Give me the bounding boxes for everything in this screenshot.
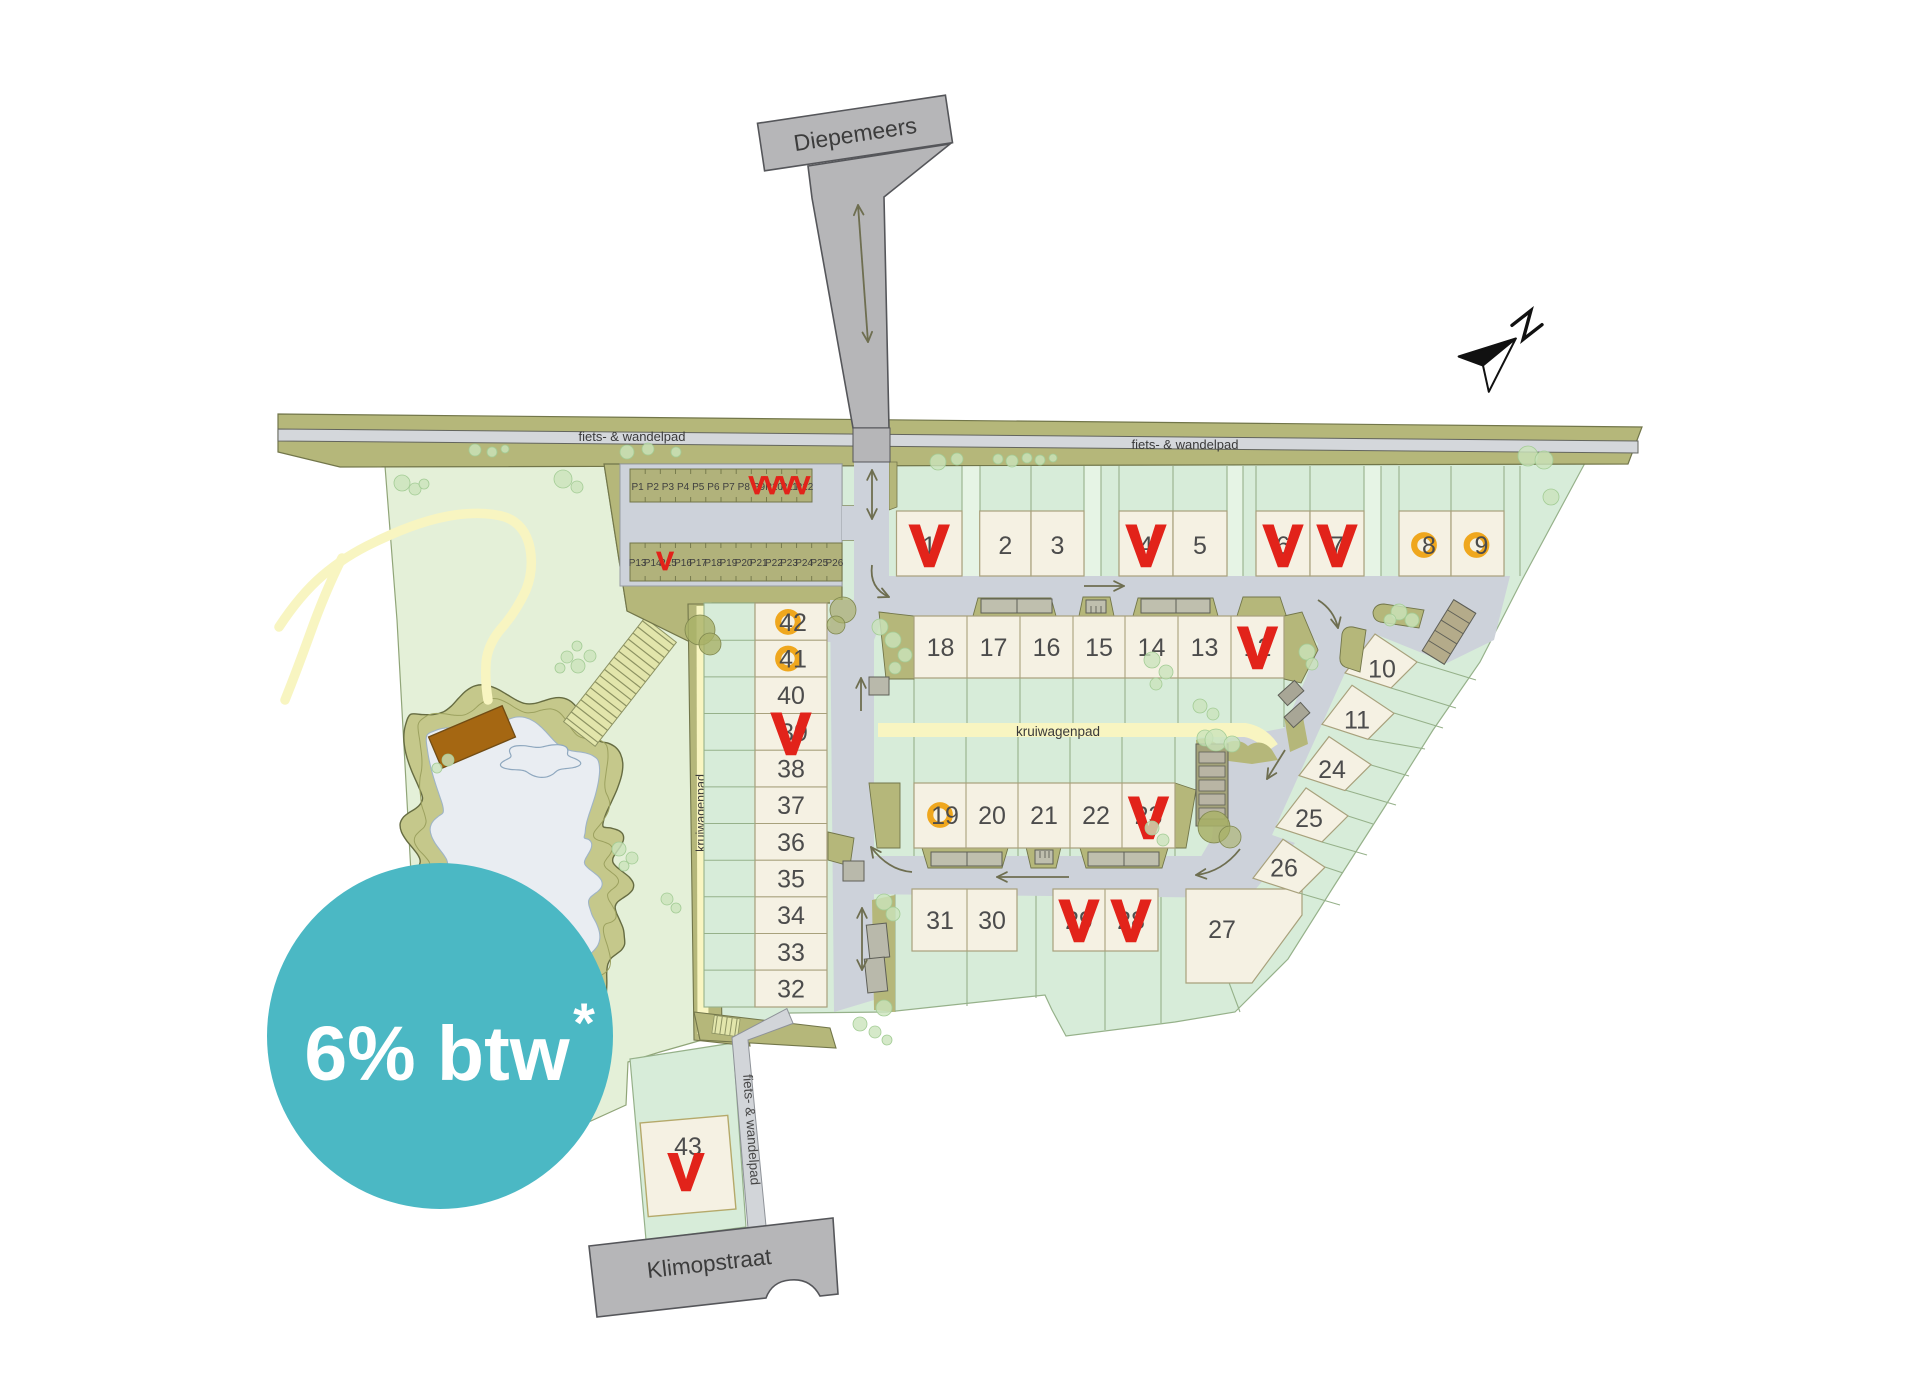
svg-text:17: 17 [980,634,1008,662]
svg-text:10: 10 [1368,655,1396,683]
svg-text:P7: P7 [722,482,735,493]
svg-text:27: 27 [1208,916,1236,944]
svg-text:24: 24 [1318,756,1346,784]
svg-text:25: 25 [1295,805,1323,833]
svg-text:35: 35 [777,865,805,893]
svg-text:38: 38 [777,756,805,784]
svg-text:13: 13 [1191,634,1219,662]
svg-text:V: V [1127,514,1166,579]
svg-text:V: V [1238,616,1277,681]
svg-text:*: * [573,991,595,1054]
svg-text:41: 41 [779,646,807,674]
svg-text:31: 31 [926,907,954,935]
svg-text:9: 9 [1475,532,1489,560]
svg-text:19: 19 [931,802,959,830]
svg-text:33: 33 [777,939,805,967]
svg-text:3: 3 [1051,532,1065,560]
svg-text:V: V [1318,514,1357,579]
svg-text:V: V [1060,889,1099,954]
svg-text:30: 30 [978,907,1006,935]
svg-text:34: 34 [777,902,805,930]
svg-text:15: 15 [1085,634,1113,662]
svg-text:V: V [1112,889,1151,954]
svg-text:P3: P3 [662,482,675,493]
svg-text:V: V [1264,514,1303,579]
svg-text:37: 37 [777,792,805,820]
svg-text:22: 22 [1082,802,1110,830]
svg-text:P4: P4 [677,482,690,493]
svg-text:32: 32 [777,975,805,1003]
svg-text:P26: P26 [826,558,844,569]
svg-text:42: 42 [779,609,807,637]
svg-text:20: 20 [978,802,1006,830]
svg-text:P6: P6 [707,482,720,493]
svg-text:V: V [669,1144,704,1202]
svg-text:2: 2 [998,532,1012,560]
svg-text:P1: P1 [631,482,644,493]
svg-text:fiets- & wandelpad: fiets- & wandelpad [1132,437,1239,452]
svg-text:P5: P5 [692,482,705,493]
svg-text:V: V [910,514,949,579]
svg-text:8: 8 [1422,532,1436,560]
svg-text:V: V [656,546,674,576]
svg-text:18: 18 [927,634,955,662]
svg-text:5: 5 [1193,532,1207,560]
svg-text:11: 11 [1344,707,1370,735]
svg-text:6% btw: 6% btw [304,1011,570,1097]
svg-text:fiets- & wandelpad: fiets- & wandelpad [579,429,686,444]
svg-text:36: 36 [777,829,805,857]
svg-text:16: 16 [1033,634,1061,662]
svg-text:P2: P2 [647,482,660,493]
svg-text:kruiwagenpad: kruiwagenpad [1016,724,1100,739]
svg-text:21: 21 [1030,802,1058,830]
svg-text:26: 26 [1270,854,1298,882]
svg-text:V: V [794,472,811,500]
